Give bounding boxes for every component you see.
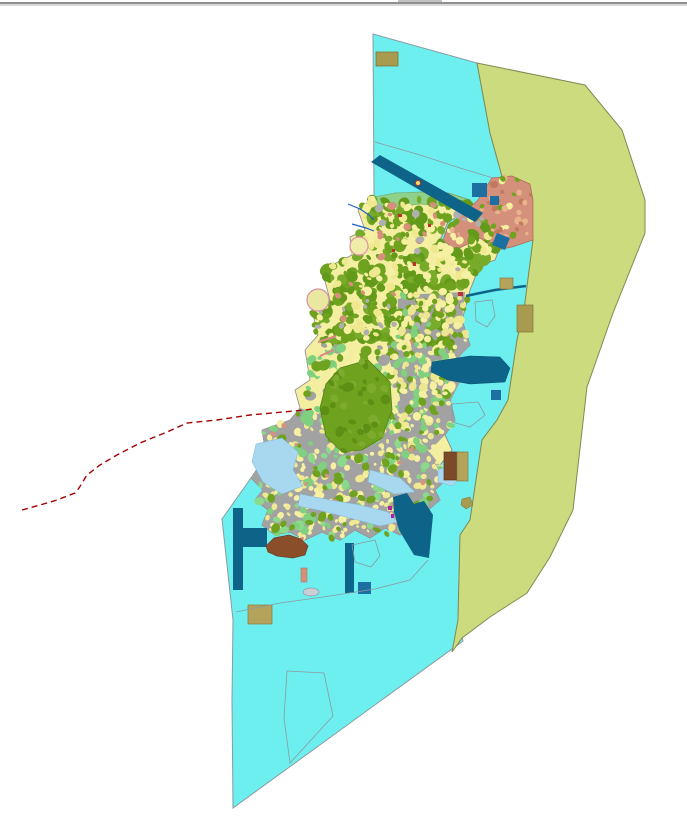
facility-square-south: [358, 582, 371, 594]
khaki-square-top: [376, 52, 398, 66]
breakwater-sw-vertical: [233, 508, 243, 590]
islet-gray: [303, 588, 319, 596]
magenta-speck-2: [391, 514, 394, 518]
pink-lobe-west-1: [350, 237, 368, 255]
facility-square-ne-1: [472, 183, 487, 197]
magenta-speck-1: [388, 506, 392, 510]
facility-khaki-east: [457, 452, 468, 481]
facility-brown-east: [444, 452, 457, 480]
red-speck-4: [413, 262, 416, 266]
islet-salmon: [301, 568, 307, 582]
red-speck-2: [428, 224, 431, 227]
red-speck-1: [398, 214, 402, 217]
pier-speck-red: [458, 292, 463, 296]
map-canvas[interactable]: [0, 0, 687, 821]
pink-lobe-west-2: [307, 289, 329, 311]
buoy-symbol: [416, 181, 421, 186]
facility-square-ne-2: [490, 196, 499, 205]
breakwater-sw-horizontal: [233, 528, 267, 547]
khaki-square-ne: [500, 278, 513, 289]
map-viewport[interactable]: [0, 0, 687, 821]
facility-square-east: [491, 390, 501, 400]
red-speck-3: [392, 249, 395, 252]
khaki-rect-east: [517, 305, 533, 332]
khaki-rect-sw: [248, 605, 272, 624]
